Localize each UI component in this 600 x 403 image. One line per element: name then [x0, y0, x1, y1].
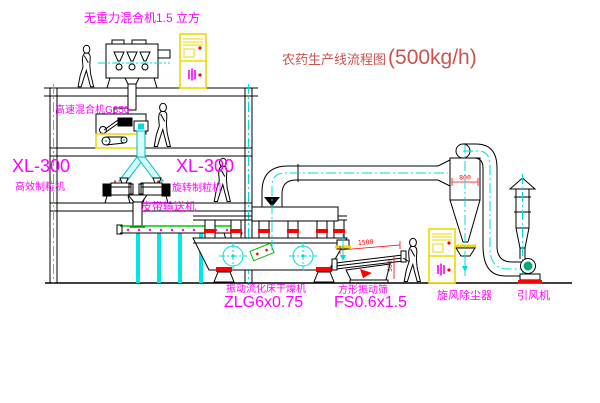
label-gravityless-mixer: 无重力混合机1.5 立方 [84, 12, 200, 24]
granulator-left [102, 178, 133, 203]
label-dryer-model: ZLG6x0.75 [224, 295, 303, 311]
label-xl300-right: XL-300 [176, 157, 234, 175]
induced-draft-fan [518, 259, 542, 284]
svg-text:1500: 1500 [358, 238, 374, 247]
label-granulator-left: 高效制粒机 [15, 183, 65, 193]
label-cyclone: 旋风除尘器 [437, 291, 492, 302]
diagram-title-capacity: (500kg/h) [388, 46, 477, 70]
diagram-title-text: 农药生产线流程图 [282, 49, 386, 68]
label-high-speed-mixer: 高速混合机G350 [55, 106, 129, 116]
svg-text:500: 500 [386, 260, 394, 272]
flow-diagram-canvas: 800 [0, 0, 600, 403]
label-xl300-left: XL-300 [12, 157, 70, 175]
dryer-plenum [252, 207, 338, 221]
worker-second-floor [154, 103, 170, 146]
fan-base [518, 280, 542, 284]
label-fan: 引风机 [517, 291, 550, 302]
label-granulator-right: 旋转制粒机 [172, 184, 222, 194]
worker-top-floor [78, 45, 94, 86]
control-panel-top [180, 34, 206, 88]
control-panel-ground [429, 229, 455, 283]
diagram-title: 农药生产线流程图 (500kg/h) [282, 46, 477, 70]
label-screen-model: FS0.6x1.5 [334, 295, 407, 311]
label-belt-conveyor: 皮带输送机 [141, 202, 196, 213]
gravityless-mixer [98, 40, 170, 110]
